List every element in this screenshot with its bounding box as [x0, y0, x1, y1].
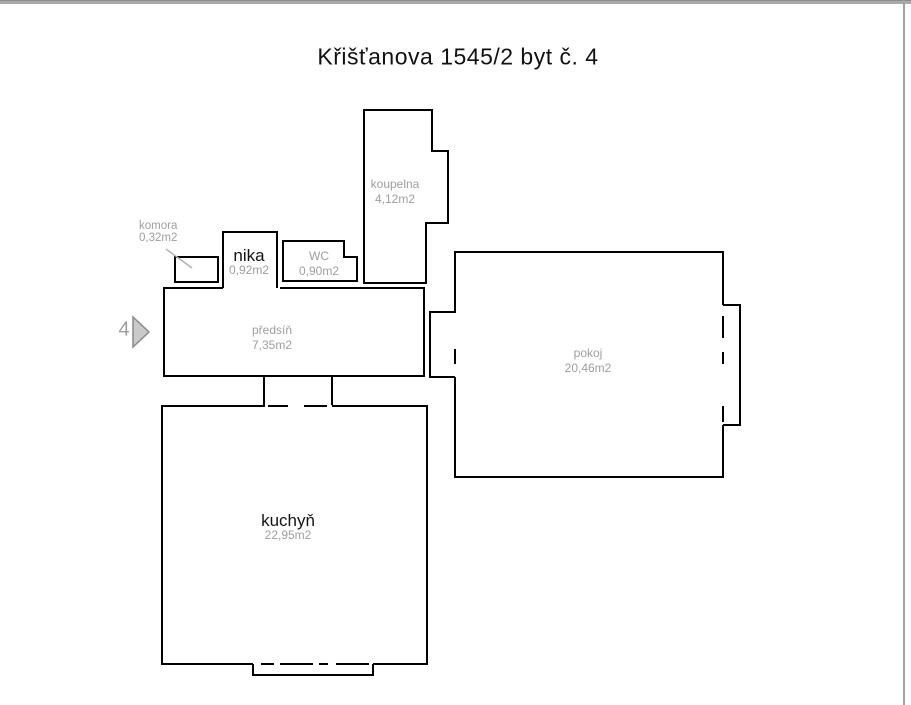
room-area-komora: 0,32m2	[139, 232, 177, 244]
room-name-koupelna: koupelna	[371, 177, 420, 192]
room-name-predsin: předsíň	[252, 323, 292, 338]
room-label-nika: nika 0,92m2	[229, 248, 269, 278]
floorplan-drawing	[0, 0, 911, 705]
unit-number: 4	[118, 319, 129, 342]
floorplan-page: Křišťanova 1545/2 byt č. 4	[0, 0, 911, 705]
room-label-kuchyn: kuchyň 22,95m2	[261, 513, 315, 543]
room-label-predsin: předsíň 7,35m2	[252, 323, 292, 353]
room-label-komora: komora 0,32m2	[139, 220, 177, 244]
room-label-pokoj: pokoj 20,46m2	[565, 346, 612, 376]
wall-predsin	[164, 288, 424, 376]
room-name-pokoj: pokoj	[565, 346, 612, 361]
door-predsin-pokoj	[430, 312, 455, 377]
room-area-koupelna: 4,12m2	[371, 192, 420, 207]
room-name-nika: nika	[229, 248, 269, 263]
room-area-nika: 0,92m2	[229, 263, 269, 278]
room-label-koupelna: koupelna 4,12m2	[371, 177, 420, 207]
room-area-predsin: 7,35m2	[252, 338, 292, 353]
room-name-wc: WC	[299, 249, 339, 264]
komora-leader-line	[166, 249, 192, 268]
unit-direction-arrow	[133, 317, 149, 347]
passage-predsin-kuchyn	[264, 377, 332, 405]
room-label-wc: WC 0,90m2	[299, 249, 339, 279]
room-area-wc: 0,90m2	[299, 264, 339, 279]
room-area-kuchyn: 22,95m2	[261, 528, 315, 543]
room-name-kuchyn: kuchyň	[261, 513, 315, 528]
room-name-komora: komora	[139, 220, 177, 232]
room-area-pokoj: 20,46m2	[565, 361, 612, 376]
kuchyn-bay-window	[253, 664, 373, 675]
pokoj-bay-window	[723, 305, 740, 425]
